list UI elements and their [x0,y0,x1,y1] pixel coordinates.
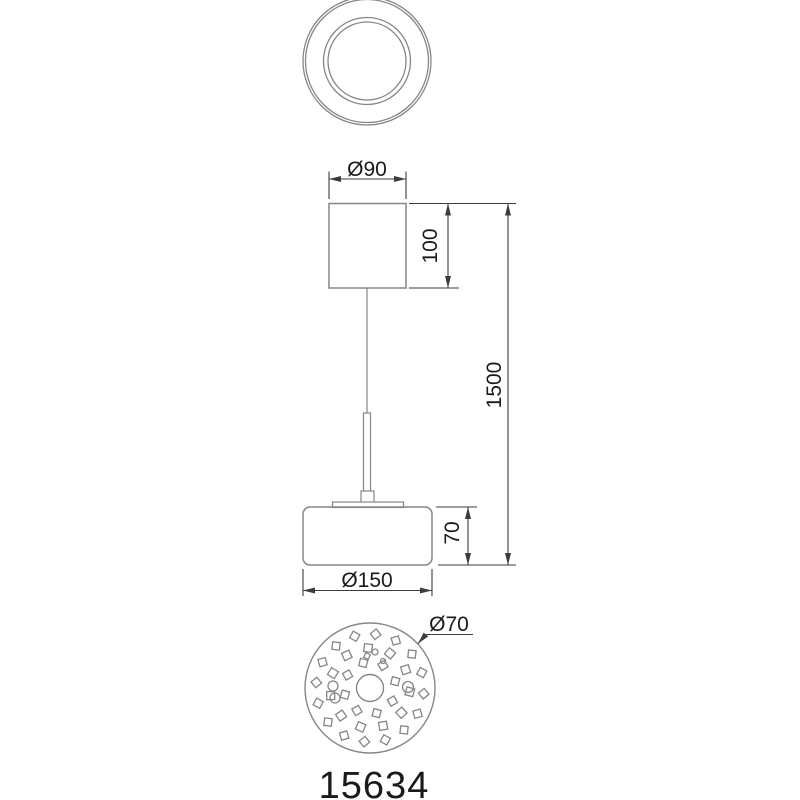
dimension-shade-diameter: Ø150 [303,569,432,596]
shade-outline [303,507,432,565]
shade-diameter-label: Ø150 [341,569,392,592]
dimension-shade-height: 70 [436,507,477,565]
led-square [340,731,349,740]
led-square [324,718,332,726]
dimension-led-board-diameter: Ø70 [418,613,473,644]
led-square [352,705,362,715]
led-board-outline [305,623,435,753]
led-square [400,726,408,734]
canopy-outline [329,204,406,289]
led-board-hub [357,675,384,702]
led-square [408,650,416,658]
led-square [318,657,327,666]
led-square [340,690,349,699]
model-number: 15634 [319,765,430,800]
led-square [350,631,360,641]
led-square [364,644,373,653]
suspension-rod [364,413,371,492]
led-square [313,698,323,708]
led-array [311,629,429,747]
led-square [342,670,352,680]
led-square [391,677,400,686]
led-small-circle [328,681,338,691]
led-square [418,688,429,699]
top-view-inner-ring-outer [324,18,411,105]
top-view [303,0,431,125]
dimension-canopy-height: 100 [409,204,459,289]
led-board-diameter-label: Ø70 [429,613,469,636]
led-square [378,660,388,670]
shade-height-label: 70 [441,521,464,544]
canopy-height-label: 100 [419,228,442,263]
led-small-square [364,653,371,660]
led-square [327,668,338,679]
drawing-canvas: Ø90 100 1500 70 Ø150 Ø70 15634 [0,0,800,800]
bottom-view [305,623,435,753]
suspension-length-label: 1500 [483,362,506,409]
led-square [311,677,322,688]
led-square [391,636,400,645]
led-square [359,658,368,667]
technical-drawing-page: Ø90 100 1500 70 Ø150 Ø70 15634 [0,0,800,800]
top-view-inner-ring-inner [328,22,406,100]
led-square [379,721,388,730]
led-square [336,710,347,721]
shade-connector [361,491,374,503]
led-square [370,629,381,640]
led-square [341,650,352,661]
dimension-canopy-diameter: Ø90 [329,158,406,199]
led-square [396,707,407,718]
canopy-diameter-label: Ø90 [347,158,387,181]
led-square [387,696,397,706]
led-square [359,736,370,747]
front-view [303,204,432,566]
led-square [380,735,390,745]
led-square [413,709,422,718]
led-square [417,668,427,678]
led-small-circle [372,649,378,655]
led-square [332,642,340,650]
led-square [372,709,381,718]
led-square [355,722,366,733]
led-square [401,665,411,675]
led-square [384,648,395,659]
